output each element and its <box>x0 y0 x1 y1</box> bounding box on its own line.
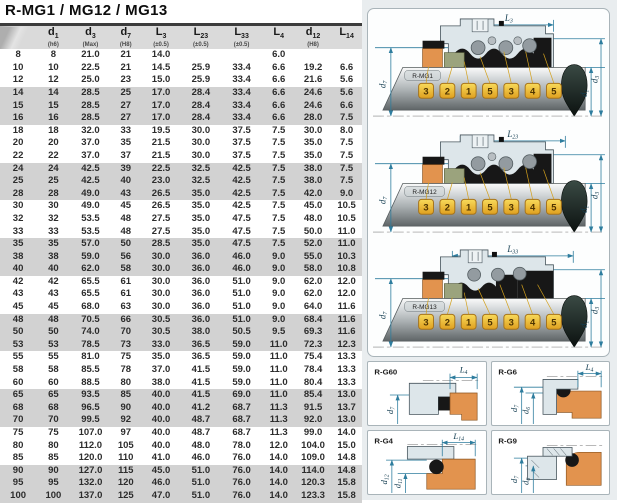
svg-text:5: 5 <box>487 201 492 212</box>
dimension-cell: 32 <box>36 213 70 226</box>
seal-diagram-mg13: L33 R-MG13 3 2 1 <box>368 241 609 355</box>
dimension-cell: 24.6 <box>295 87 331 100</box>
dimension-cell: 11.0 <box>262 351 295 364</box>
dimension-cell: 28.5 <box>71 100 111 113</box>
size-cell: 18 <box>0 125 36 138</box>
panel-label: R-G4 <box>374 437 393 446</box>
dimension-cell: 36.0 <box>181 314 221 327</box>
size-cell: 40 <box>0 263 36 276</box>
dimension-cell: 41.5 <box>181 364 221 377</box>
dimension-cell: 50 <box>110 238 141 251</box>
dimension-cell: 15 <box>36 100 70 113</box>
dimension-cell: 7.5 <box>262 238 295 251</box>
dimension-cell: 41.5 <box>181 389 221 402</box>
dimension-cell: 19.5 <box>141 125 181 138</box>
dimension-cell: 10 <box>36 62 70 75</box>
dimension-cell: 35.0 <box>181 200 221 213</box>
dimension-cell: 14.0 <box>262 490 295 503</box>
dimension-cell: 42.5 <box>71 163 111 176</box>
table-row: 323253.54827.535.047.57.548.010.5 <box>0 213 362 226</box>
dimension-cell: 7.5 <box>262 200 295 213</box>
dimension-cell: 10.3 <box>331 251 362 264</box>
dimension-cell: 115 <box>110 465 141 478</box>
svg-text:3: 3 <box>423 86 428 97</box>
dimension-cell: 41.5 <box>181 377 221 390</box>
size-cell: 65 <box>0 389 36 402</box>
table-row: 303049.04526.535.042.57.545.010.5 <box>0 200 362 213</box>
table-row: 8821.02114.06.0 <box>0 49 362 62</box>
size-cell: 45 <box>0 301 36 314</box>
dimension-cell: 58.0 <box>295 263 331 276</box>
table-row: 505074.07030.538.050.59.569.311.6 <box>0 326 362 339</box>
dimension-cell: 11.3 <box>262 414 295 427</box>
dim-label-d7: d7 <box>385 406 396 414</box>
dimension-cell: 28.0 <box>295 112 331 125</box>
dimension-cell: 35.0 <box>141 351 181 364</box>
dimension-cell: 10.5 <box>331 200 362 213</box>
dimension-cell: 35.0 <box>181 226 221 239</box>
dimension-cell: 6.6 <box>331 100 362 113</box>
dimension-cell: 123.3 <box>295 490 331 503</box>
dimension-cell: 14.8 <box>331 452 362 465</box>
dimension-cell: 37.0 <box>71 137 111 150</box>
dimension-cell: 10.5 <box>331 213 362 226</box>
table-row: 151528.52717.028.433.46.624.66.6 <box>0 100 362 113</box>
table-row: 181832.03319.530.037.57.530.08.0 <box>0 125 362 138</box>
dimension-cell: 9.5 <box>262 326 295 339</box>
dimension-cell: 47.5 <box>221 213 263 226</box>
dimension-cell: 68 <box>36 402 70 415</box>
dimension-cell: 11.6 <box>331 301 362 314</box>
dim-label-d7: d7 <box>377 311 388 319</box>
svg-text:3: 3 <box>509 317 514 328</box>
dimension-cell <box>295 49 331 62</box>
dimension-cell: 36.0 <box>181 276 221 289</box>
seal-diagram-mg12: L23 R-MG12 3 2 1 <box>368 126 609 240</box>
dimension-cell: 8.0 <box>331 125 362 138</box>
table-row: 434365.56130.036.051.09.062.012.0 <box>0 288 362 301</box>
dimension-cell: 55.0 <box>295 251 331 264</box>
svg-text:5: 5 <box>487 317 492 328</box>
set-screw <box>499 136 504 141</box>
panel-label: R-G6 <box>498 368 517 377</box>
dimension-cell: 40.0 <box>141 427 181 440</box>
dimension-cell: 50 <box>36 326 70 339</box>
dimension-cell: 40 <box>110 175 141 188</box>
dimension-cell: 120.0 <box>71 452 111 465</box>
dimension-cell: 21.0 <box>71 49 111 62</box>
dimension-cell: 35.0 <box>181 238 221 251</box>
dimension-cell: 33.4 <box>221 112 263 125</box>
dimension-cell: 68.0 <box>71 301 111 314</box>
dim-label-d11: d11 <box>393 478 404 488</box>
dimension-cell: 7.5 <box>262 226 295 239</box>
dimension-cell: 20 <box>36 137 70 150</box>
dimension-cell: 23 <box>110 74 141 87</box>
spring <box>471 41 485 55</box>
dimension-cell: 13.0 <box>331 389 362 402</box>
dimension-cell: 30.0 <box>141 251 181 264</box>
size-cell: 95 <box>0 477 36 490</box>
dimension-cell: 75 <box>110 351 141 364</box>
table-row: 282849.04326.535.042.57.542.09.0 <box>0 188 362 201</box>
dimension-cell: 42.5 <box>71 175 111 188</box>
svg-text:3: 3 <box>509 201 514 212</box>
seat-panel-g6: L4 d7 d6 R-G6 <box>491 361 611 426</box>
svg-text:4: 4 <box>530 317 536 328</box>
dim-label-d7: d7 <box>508 475 519 483</box>
dimension-cell: 28.5 <box>71 87 111 100</box>
dimension-cell: 6.0 <box>262 49 295 62</box>
dimension-cell: 52.0 <box>295 238 331 251</box>
dimension-cell: 27 <box>110 100 141 113</box>
column-header: d1(h6) <box>36 25 70 50</box>
table-row: 141428.52517.028.433.46.624.65.6 <box>0 87 362 100</box>
table-row: 101022.52114.525.933.46.619.26.6 <box>0 62 362 75</box>
dimension-cell: 7.5 <box>262 163 295 176</box>
dimension-cell: 110 <box>110 452 141 465</box>
table-row: 7575107.09740.048.768.711.399.014.0 <box>0 427 362 440</box>
dim-label-L23: L23 <box>506 128 518 139</box>
dimension-cell: 85.5 <box>71 364 111 377</box>
size-cell: 75 <box>0 427 36 440</box>
table-row: 707099.59240.048.768.711.392.013.0 <box>0 414 362 427</box>
table-row: 686896.59040.041.268.711.391.513.7 <box>0 402 362 415</box>
dimension-cell: 38.0 <box>181 326 221 339</box>
dimension-cell: 41.2 <box>181 402 221 415</box>
dimension-cell: 47.5 <box>221 238 263 251</box>
svg-text:5: 5 <box>551 317 556 328</box>
dimension-cell: 51.0 <box>181 490 221 503</box>
dimension-cell: 69.3 <box>295 326 331 339</box>
dimension-cell: 99.5 <box>71 414 111 427</box>
size-cell: 42 <box>0 276 36 289</box>
dimension-cell: 7.5 <box>331 137 362 150</box>
dimension-cell: 25.0 <box>71 74 111 87</box>
dimension-cell: 42.5 <box>221 163 263 176</box>
dimension-cell: 46.0 <box>141 477 181 490</box>
dimension-cell: 91.5 <box>295 402 331 415</box>
dimension-cell: 74.0 <box>71 326 111 339</box>
panel-label: R-G60 <box>374 368 397 377</box>
dimension-cell: 30.0 <box>181 137 221 150</box>
dimension-cell: 85 <box>110 389 141 402</box>
size-cell: 30 <box>0 200 36 213</box>
dimension-cell: 38 <box>36 251 70 264</box>
dimension-cell: 32.5 <box>181 175 221 188</box>
dimension-cell: 15.8 <box>331 477 362 490</box>
dimension-cell: 63 <box>110 301 141 314</box>
dimension-cell: 7.5 <box>262 125 295 138</box>
dimension-cell: 78.0 <box>221 440 263 453</box>
column-header: L14 <box>331 25 362 50</box>
size-cell: 38 <box>0 251 36 264</box>
table-row: 333353.54827.535.047.57.550.011.0 <box>0 226 362 239</box>
part-number-badges: 3 2 1 5 3 4 5 <box>419 83 562 98</box>
dimension-cell: 11.0 <box>331 238 362 251</box>
size-cell: 100 <box>0 490 36 503</box>
dimension-cell: 12 <box>36 74 70 87</box>
dimension-cell: 76.0 <box>221 477 263 490</box>
dimension-cell: 88.5 <box>71 377 111 390</box>
gland-housing <box>407 447 454 460</box>
dimension-cell: 107.0 <box>71 427 111 440</box>
svg-text:5: 5 <box>551 86 556 97</box>
dimension-cell: 57.0 <box>71 238 111 251</box>
size-cell: 85 <box>0 452 36 465</box>
size-cell: 20 <box>0 137 36 150</box>
dimension-cell: 9.0 <box>262 251 295 264</box>
dimension-cell: 42.0 <box>295 188 331 201</box>
table-row: 353557.05028.535.047.57.552.011.0 <box>0 238 362 251</box>
dimension-cell: 30 <box>36 200 70 213</box>
dimension-cell: 125 <box>110 490 141 503</box>
table-row: 100100137.012547.051.076.014.0123.315.8 <box>0 490 362 503</box>
svg-text:4: 4 <box>530 201 536 212</box>
dimension-cell: 47.5 <box>221 226 263 239</box>
size-cell: 32 <box>0 213 36 226</box>
dimension-cell: 13.3 <box>331 364 362 377</box>
dimension-cell: 40.0 <box>141 402 181 415</box>
dimension-cell <box>221 49 263 62</box>
dimension-cell: 22 <box>36 150 70 163</box>
dimension-cell: 21 <box>110 49 141 62</box>
dimension-cell: 9.0 <box>262 276 295 289</box>
dimension-cell: 50.5 <box>221 326 263 339</box>
dimension-cell: 76.0 <box>221 490 263 503</box>
dimension-cell: 14 <box>36 87 70 100</box>
dimension-cell: 9.0 <box>331 188 362 201</box>
dimension-cell: 51.0 <box>221 288 263 301</box>
size-cell: 43 <box>0 288 36 301</box>
dimension-cell: 95 <box>36 477 70 490</box>
dimension-cell: 73 <box>110 339 141 352</box>
dimension-cell: 36.5 <box>181 339 221 352</box>
table-row: 555581.07535.036.559.011.075.413.3 <box>0 351 362 364</box>
dimension-cell: 7.5 <box>331 112 362 125</box>
dimension-cell: 5.6 <box>331 74 362 87</box>
diagram-panel: L3 R-MG1 3 2 1 <box>362 0 617 500</box>
dim-label-L33: L33 <box>506 244 518 255</box>
dimension-cell: 28 <box>36 188 70 201</box>
dimension-cell: 21.5 <box>141 137 181 150</box>
dimension-cell: 36.5 <box>181 351 221 364</box>
size-cell: 14 <box>0 87 36 100</box>
size-cell: 35 <box>0 238 36 251</box>
dimension-cell: 68.7 <box>221 414 263 427</box>
dimension-cell: 6.6 <box>262 112 295 125</box>
gland-housing <box>527 456 556 479</box>
dimension-cell: 28.4 <box>181 112 221 125</box>
dimension-cell: 37.5 <box>221 150 263 163</box>
corner-cell <box>0 25 36 50</box>
dimension-cell: 48 <box>110 213 141 226</box>
dimension-cell: 114.0 <box>295 465 331 478</box>
dimension-cell: 41.0 <box>141 452 181 465</box>
table-row: 9595132.012046.051.076.014.0120.315.8 <box>0 477 362 490</box>
dimension-cell: 80 <box>36 440 70 453</box>
dimension-cell: 75.4 <box>295 351 331 364</box>
svg-text:5: 5 <box>487 86 492 97</box>
size-cell: 33 <box>0 226 36 239</box>
dimension-cell: 25 <box>110 87 141 100</box>
dim-label-L4: L4 <box>459 365 468 376</box>
diagram-label: R-MG1 <box>412 73 433 80</box>
dimension-cell: 36.0 <box>181 263 221 276</box>
dimension-cell: 49.0 <box>71 188 111 201</box>
dimension-cell: 97 <box>110 427 141 440</box>
size-cell: 60 <box>0 377 36 390</box>
dimension-cell: 42.5 <box>221 175 263 188</box>
dimension-cell: 35.0 <box>295 150 331 163</box>
dimension-cell: 23.0 <box>141 175 181 188</box>
dimension-cell: 80 <box>110 377 141 390</box>
dimension-table: d1(h6)d3(Max)d7(H8)L3(±0.5)L23(±0.5)L33(… <box>0 23 362 503</box>
dimension-cell: 40.0 <box>141 440 181 453</box>
dimension-cell: 9.0 <box>262 263 295 276</box>
dimension-cell: 68.7 <box>221 402 263 415</box>
table-row: 383859.05630.036.046.09.055.010.3 <box>0 251 362 264</box>
table-row: 535378.57333.036.559.011.072.312.3 <box>0 339 362 352</box>
dimension-cell: 112.0 <box>71 440 111 453</box>
dimension-cell: 105 <box>110 440 141 453</box>
dimension-cell: 51.0 <box>221 276 263 289</box>
dimension-cell: 5.6 <box>331 87 362 100</box>
dimension-cell: 11.3 <box>262 427 295 440</box>
dimension-cell: 12.0 <box>262 440 295 453</box>
dimension-cell: 76.0 <box>221 465 263 478</box>
dimension-cell: 42.5 <box>221 200 263 213</box>
dimension-cell: 59.0 <box>221 339 263 352</box>
table-row: 9090127.011545.051.076.014.0114.014.8 <box>0 465 362 478</box>
dimension-cell: 28.4 <box>181 87 221 100</box>
dimension-cell: 21 <box>110 62 141 75</box>
dim-label-d12: d12 <box>379 474 390 484</box>
dimension-cell: 13.3 <box>331 351 362 364</box>
dimension-cell: 28.5 <box>71 112 111 125</box>
dimension-cell: 11.0 <box>262 377 295 390</box>
table-row: 656593.58540.041.569.011.085.413.0 <box>0 389 362 402</box>
column-header: L33(±0.5) <box>221 25 263 50</box>
seat-ring <box>450 393 477 420</box>
size-cell: 53 <box>0 339 36 352</box>
dimension-cell: 35.0 <box>181 188 221 201</box>
dimension-cell: 36.0 <box>181 251 221 264</box>
table-row: 8080112.010540.048.078.012.0104.015.0 <box>0 440 362 453</box>
dimension-cell: 33.4 <box>221 87 263 100</box>
dimension-cell: 58 <box>36 364 70 377</box>
dimension-cell: 51.0 <box>221 314 263 327</box>
seat-panel-g4: L14 d12 d11 R-G4 <box>367 430 487 495</box>
dimension-cell: 7.5 <box>331 163 362 176</box>
seat-ring <box>423 49 443 68</box>
dimension-cell: 11.0 <box>331 226 362 239</box>
spring <box>468 268 481 281</box>
dimension-cell: 30.0 <box>295 125 331 138</box>
dimension-cell: 14.0 <box>331 427 362 440</box>
dimension-cell: 33.4 <box>221 100 263 113</box>
dimension-cell: 68.7 <box>221 427 263 440</box>
dimension-cell: 33 <box>36 226 70 239</box>
dimension-cell: 12.0 <box>331 288 362 301</box>
dimension-cell: 90 <box>36 465 70 478</box>
column-header: L23(±0.5) <box>181 25 221 50</box>
dimension-cell: 78.4 <box>295 364 331 377</box>
part-number-badges: 3 2 1 5 3 4 5 <box>419 199 562 214</box>
dim-label-d6: d6 <box>520 407 531 414</box>
dim-label-d7: d7 <box>508 404 519 412</box>
dimension-cell: 66 <box>110 314 141 327</box>
dim-label-d7: d7 <box>377 195 388 203</box>
dimension-cell: 65 <box>36 389 70 402</box>
dim-label-L4: L4 <box>584 362 593 373</box>
dimension-cell: 21.5 <box>141 150 181 163</box>
dimension-cell: 35 <box>110 137 141 150</box>
size-cell: 25 <box>0 175 36 188</box>
dimension-cell: 70.5 <box>71 314 111 327</box>
dimension-cell: 49.0 <box>71 200 111 213</box>
dimension-cell: 45 <box>110 200 141 213</box>
dimension-cell: 14.0 <box>262 465 295 478</box>
dimension-cell: 56 <box>110 251 141 264</box>
face-ring <box>444 53 464 68</box>
dimension-cell: 21.6 <box>295 74 331 87</box>
seat-variants-box: L4 d7 R-G60 L4 d7 d6 <box>367 361 610 495</box>
size-cell: 68 <box>0 402 36 415</box>
face-ring <box>444 284 462 299</box>
dimension-cell: 48.0 <box>181 440 221 453</box>
set-screw <box>492 252 497 257</box>
dimension-cell: 53.5 <box>71 226 111 239</box>
dimension-cell: 40 <box>36 263 70 276</box>
dimension-cell: 17.0 <box>141 87 181 100</box>
dimension-cell: 7.5 <box>262 137 295 150</box>
part-number-badges: 3 2 1 5 3 4 5 <box>419 314 562 329</box>
dimension-cell: 72.3 <box>295 339 331 352</box>
seal-diagram-mg1: L3 R-MG1 3 2 1 <box>368 10 609 124</box>
table-row: 484870.56630.536.051.09.068.411.6 <box>0 314 362 327</box>
dimension-cell: 137.0 <box>71 490 111 503</box>
dimension-cell: 80.4 <box>295 377 331 390</box>
table-row: 404062.05830.036.046.09.058.010.8 <box>0 263 362 276</box>
svg-text:2: 2 <box>445 201 450 212</box>
dimension-cell: 42.5 <box>221 188 263 201</box>
table-row: 424265.56130.036.051.09.062.012.0 <box>0 276 362 289</box>
dimension-cell: 39 <box>110 163 141 176</box>
dimension-cell: 53 <box>36 339 70 352</box>
svg-text:2: 2 <box>445 317 450 328</box>
size-cell: 10 <box>0 62 36 75</box>
dimension-cell: 96.5 <box>71 402 111 415</box>
dimension-cell: 36.0 <box>181 301 221 314</box>
dimension-cell: 127.0 <box>71 465 111 478</box>
column-header: d7(H8) <box>110 25 141 50</box>
dimension-cell: 69.0 <box>221 389 263 402</box>
seat-ring <box>423 280 443 299</box>
dimension-cell: 37.0 <box>71 150 111 163</box>
svg-text:3: 3 <box>423 201 428 212</box>
size-cell: 90 <box>0 465 36 478</box>
dimension-cell: 81.0 <box>71 351 111 364</box>
dimension-cell: 22.5 <box>141 163 181 176</box>
dimension-cell: 120.3 <box>295 477 331 490</box>
dimension-cell: 61 <box>110 276 141 289</box>
dimension-cell <box>331 49 362 62</box>
table-header-row: d1(h6)d3(Max)d7(H8)L3(±0.5)L23(±0.5)L33(… <box>0 25 362 50</box>
dimension-cell: 30.0 <box>141 276 181 289</box>
dimension-cell: 46.0 <box>221 263 263 276</box>
dimension-cell: 48 <box>36 314 70 327</box>
